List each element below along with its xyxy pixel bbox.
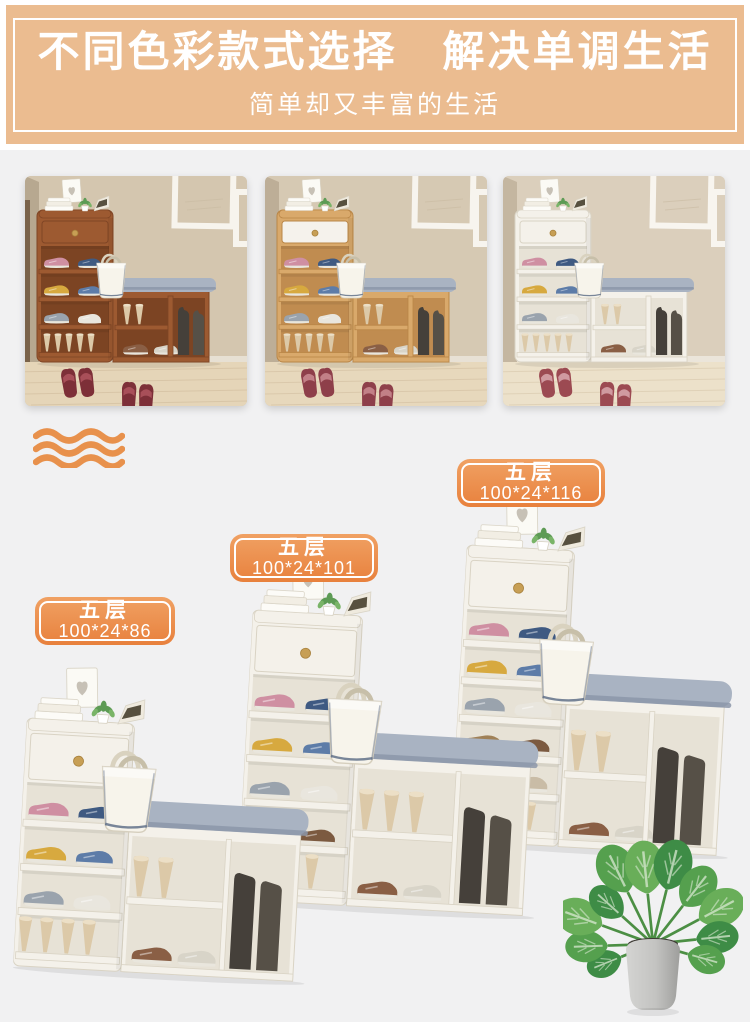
books [475,524,524,548]
color-option-photo-white [503,176,725,406]
letter-rack [118,699,145,726]
room-scene [265,176,487,406]
books [35,697,84,721]
size-badge-101-dimensions: 100*24*101 [252,559,356,579]
drawer [282,221,348,243]
product-cabinet-86 [12,662,321,995]
size-badge-101-border: 五层 100*24*101 [234,538,374,578]
size-badge-86: 五层 100*24*86 [35,597,175,645]
size-badge-116-border: 五层 100*24*116 [461,463,601,503]
drawer [254,625,356,677]
bench-unit [591,288,687,362]
size-badge-86-dimensions: 100*24*86 [58,622,151,642]
potted-plant [563,832,743,1022]
size-badge-86-border: 五层 100*24*86 [39,601,171,641]
size-badge-116: 五层 100*24*116 [457,459,605,507]
size-badge-101: 五层 100*24*101 [230,534,378,582]
product-detail-page: 不同色彩款式选择 解决单调生活 简单却又丰富的生活 五层 100*24*86 五… [0,0,750,1022]
size-badge-101-tier: 五层 [278,537,330,559]
color-option-photo-redbrown [25,176,247,406]
bench-unit [121,822,301,981]
books [523,198,551,211]
letter-rack [558,526,585,553]
plant-illustration [563,832,743,1022]
bench-unit [347,754,531,916]
bench-unit [353,288,449,362]
size-badge-86-tier: 五层 [79,600,131,622]
letter-rack [344,591,371,618]
size-badge-116-tier: 五层 [505,462,557,484]
books [261,589,310,613]
room-scene [503,176,725,406]
banner-border: 不同色彩款式选择 解决单调生活 简单却又丰富的生活 [13,18,737,132]
header-banner: 不同色彩款式选择 解决单调生活 简单却又丰富的生活 [6,5,744,144]
books [45,198,73,211]
bench-unit [113,288,209,362]
wave-decoration [33,428,125,468]
room-scene [25,176,247,406]
shoe-cabinet-illustration [13,662,322,990]
tabletop-decor [35,665,147,726]
banner-subtitle: 简单却又丰富的生活 [249,85,501,121]
wave-icon [33,428,125,468]
drawer [42,221,108,243]
books [285,198,313,211]
plant-pot [626,938,680,1016]
color-option-photo-oak [265,176,487,406]
drawer [520,221,586,243]
size-badge-116-dimensions: 100*24*116 [480,484,583,504]
banner-title: 不同色彩款式选择 解决单调生活 [37,29,712,75]
